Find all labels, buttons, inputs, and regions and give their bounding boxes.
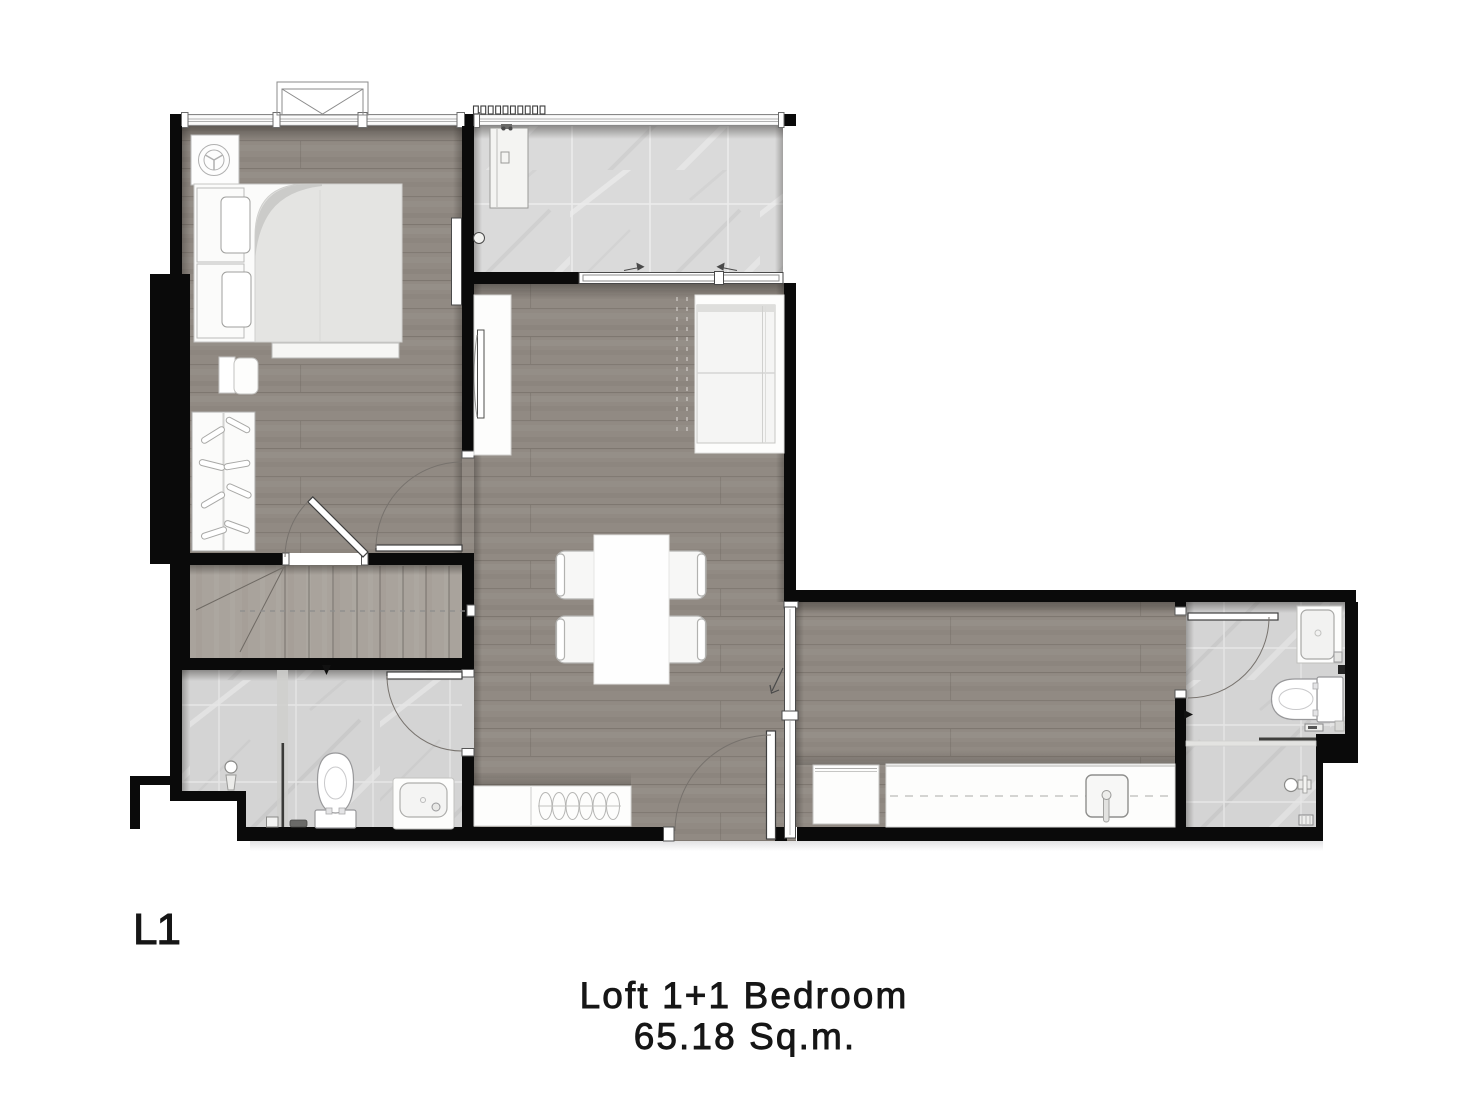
- svg-text:L1: L1: [133, 905, 180, 954]
- svg-text:Loft 1+1 Bedroom: Loft 1+1 Bedroom: [580, 975, 909, 1016]
- svg-text:65.18 Sq.m.: 65.18 Sq.m.: [634, 1016, 857, 1057]
